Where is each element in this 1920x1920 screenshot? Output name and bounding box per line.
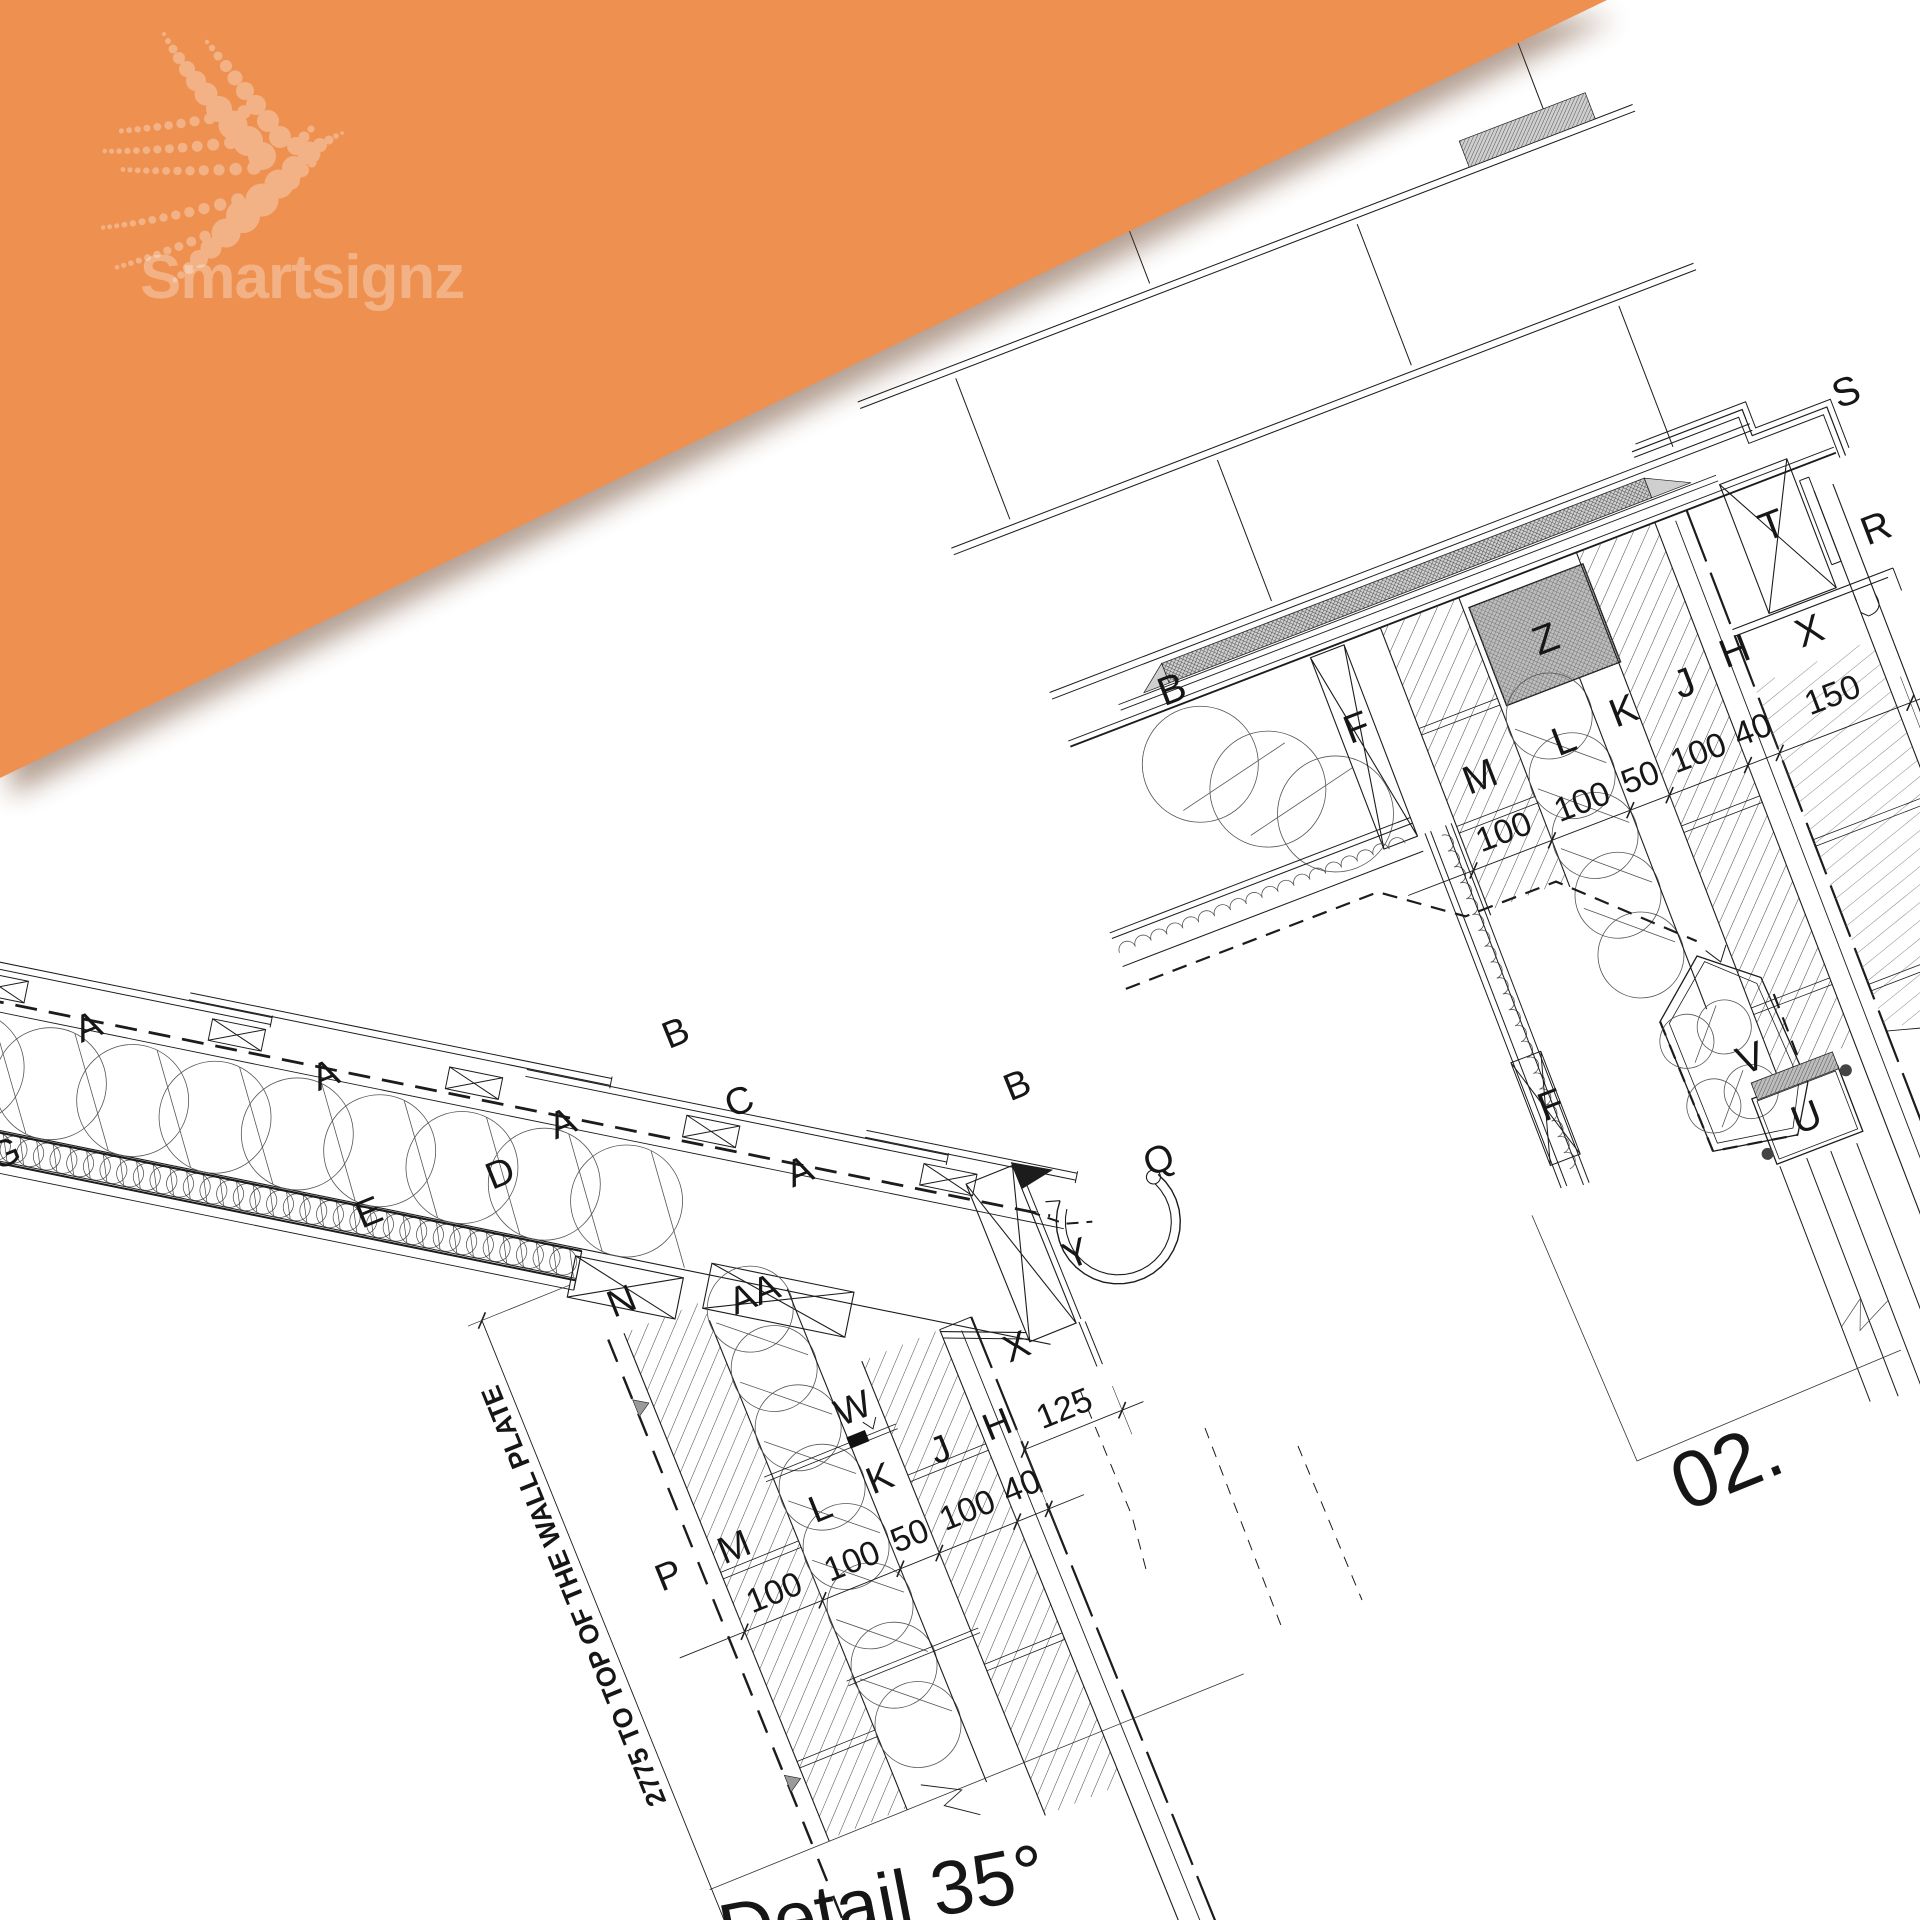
svg-text:Smartsignz: Smartsignz: [140, 243, 464, 312]
